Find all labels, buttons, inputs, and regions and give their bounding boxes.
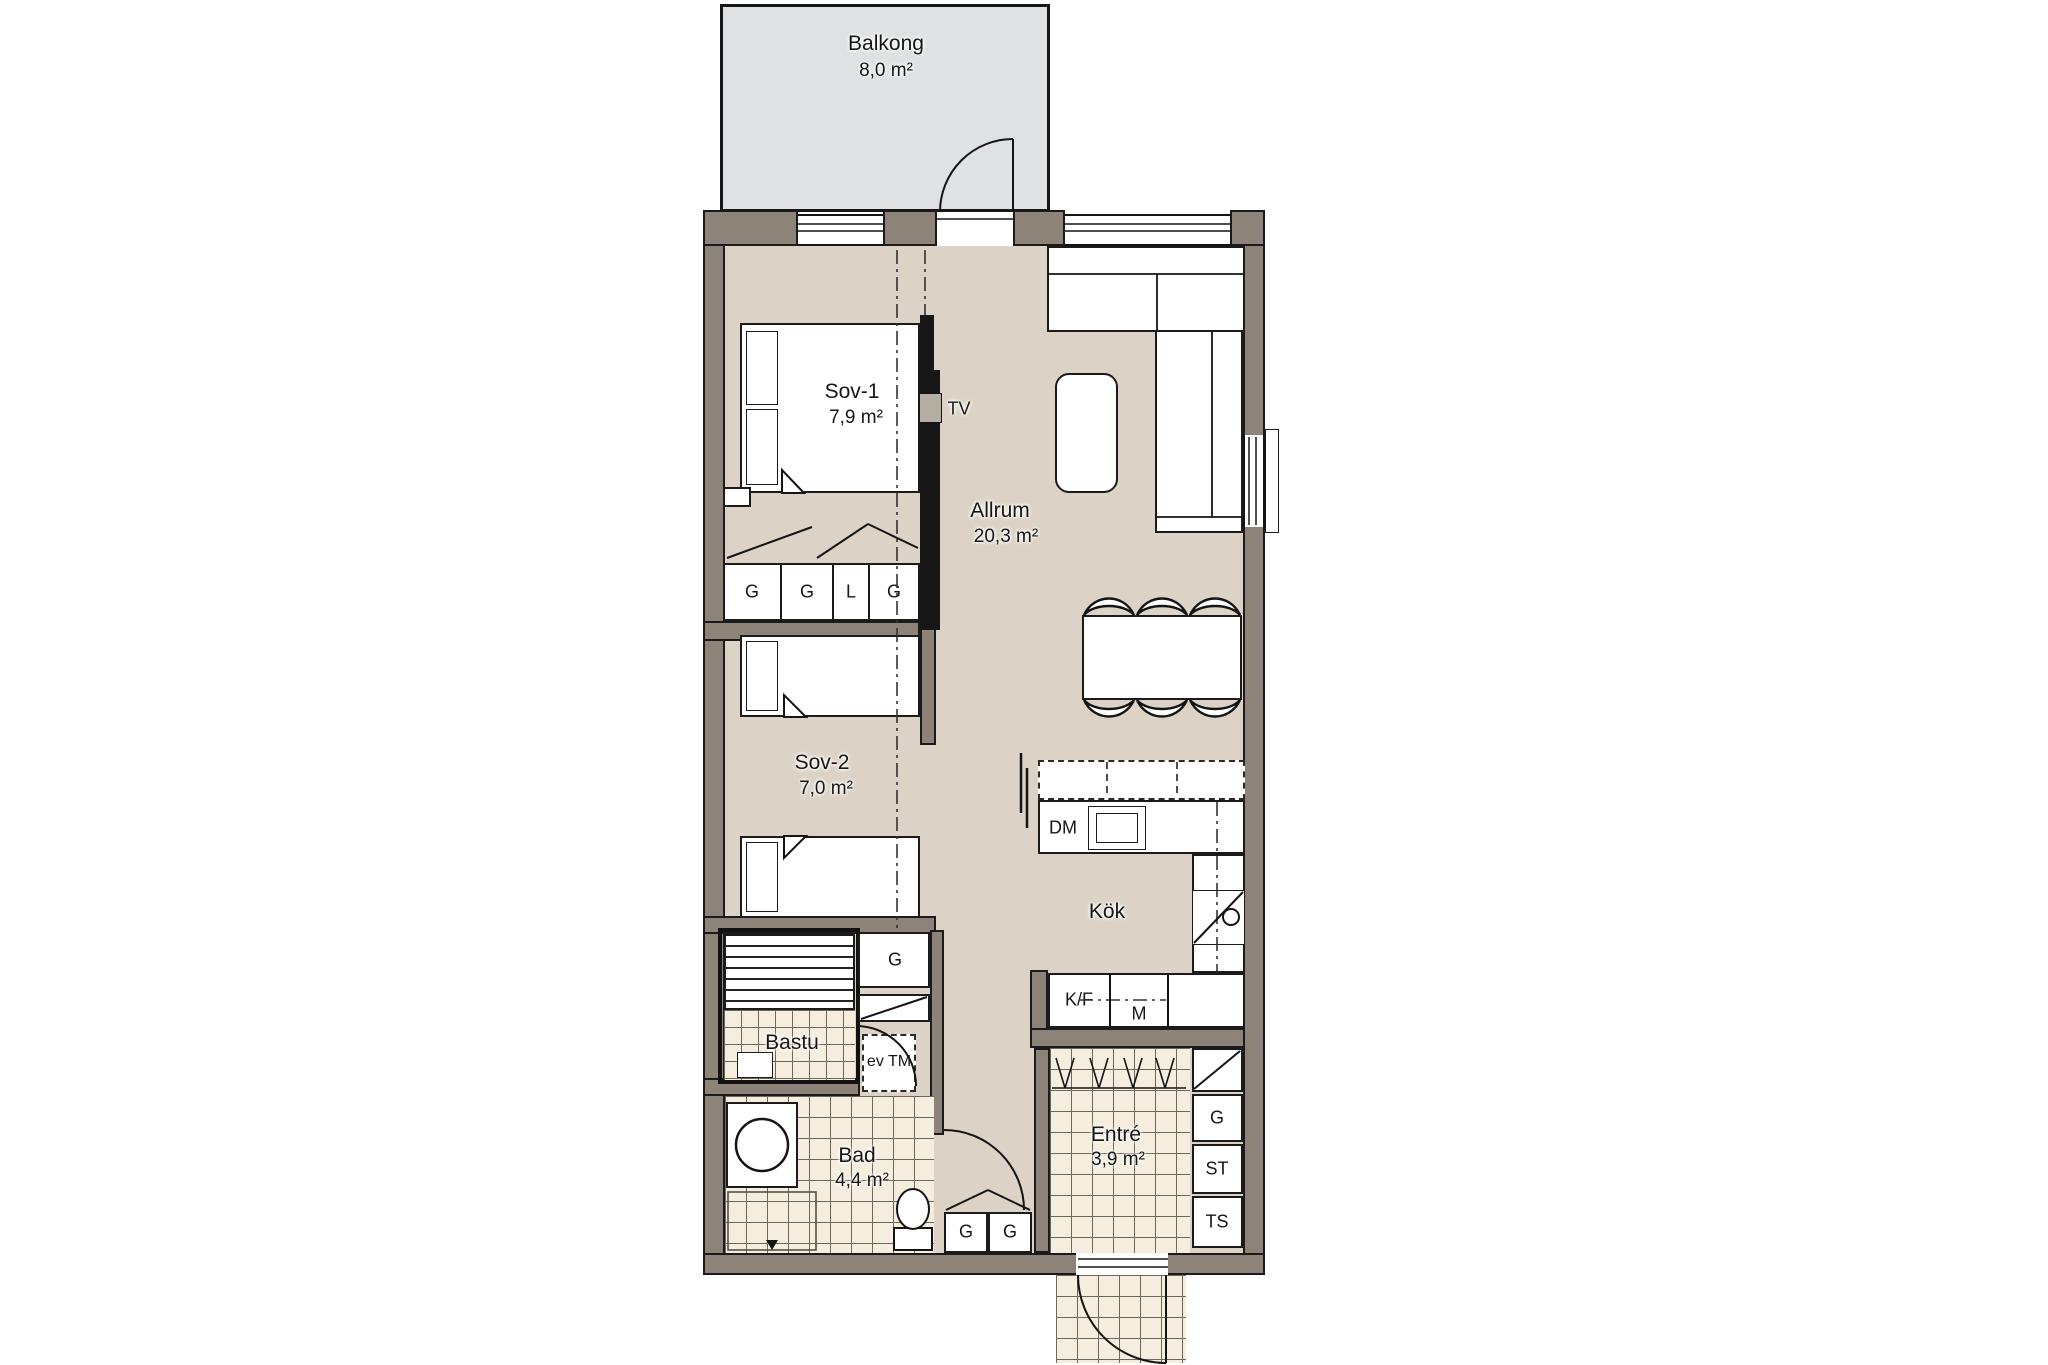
hall-shelf-box <box>858 994 930 1022</box>
bed-sov1-pillow-1 <box>746 331 778 405</box>
bastu-heater <box>737 1052 773 1078</box>
entre-shelf-box <box>1192 1048 1243 1092</box>
dining-table <box>1082 615 1242 700</box>
bottom-closet-g2-label: G <box>1003 1222 1017 1243</box>
entre-area-label: 3,9 m² <box>1091 1149 1145 1171</box>
bed-sov2-2-pillow <box>746 842 778 912</box>
fridge-freezer-label: K/F <box>1065 990 1093 1011</box>
wardrobe-l-label: L <box>846 582 856 603</box>
wall-right <box>1243 210 1265 1275</box>
sov1-area-label: 7,9 m² <box>829 407 883 429</box>
sofa-chaise <box>1155 330 1243 533</box>
sofa-body <box>1047 246 1245 332</box>
allrum-label: Allrum <box>970 499 1030 523</box>
bad-area-label: 4,4 m² <box>835 1170 889 1192</box>
bed-sov2-1-pillow <box>746 641 778 711</box>
bastu-label: Bastu <box>765 1031 819 1055</box>
entrance-exterior-pad <box>1056 1275 1186 1363</box>
window-right <box>1243 435 1265 527</box>
kitchen-upper-cabinets <box>1038 760 1245 800</box>
washbasin-cabinet <box>726 1102 798 1188</box>
window-right-sill <box>1265 429 1279 533</box>
wall-bottom <box>703 1253 1265 1275</box>
entre-label: Entré <box>1091 1123 1141 1147</box>
bad-label: Bad <box>838 1144 875 1168</box>
kitchen-oven <box>1192 890 1245 945</box>
wall-entre-left <box>1034 1048 1050 1253</box>
allrum-area-label: 20,3 m² <box>974 526 1038 548</box>
window-sov1 <box>798 214 883 246</box>
sov1-label: Sov-1 <box>825 380 880 404</box>
wardrobe-g2-label: G <box>800 582 814 603</box>
bottom-closet-g1-label: G <box>959 1222 973 1243</box>
wall-sov2-right <box>920 627 936 745</box>
floor-plan: Balkong 8,0 m² TV Sov-1 7,9 m² G G L G <box>0 0 2048 1365</box>
balcony-door-opening <box>937 214 1013 246</box>
tv-label: TV <box>947 399 970 420</box>
wall-top-c <box>1013 210 1065 246</box>
sov2-area-label: 7,0 m² <box>799 778 853 800</box>
wardrobe-g1-label: G <box>745 582 759 603</box>
bed-sov1-pillow-2 <box>746 409 778 485</box>
wall-kitchen-stub <box>1030 970 1048 1030</box>
wall-stub-sov1 <box>723 487 751 507</box>
wall-top-a <box>703 210 798 246</box>
balcony-label: Balkong <box>848 32 924 56</box>
entre-closet-ts-label: TS <box>1205 1212 1228 1233</box>
window-allrum <box>1065 214 1230 246</box>
bastu-benches <box>724 934 855 1010</box>
wall-left <box>703 210 725 1275</box>
dishwasher-label: DM <box>1049 818 1077 839</box>
coffee-table <box>1055 373 1118 493</box>
hall-closet-g-label: G <box>888 950 902 971</box>
entre-closet-st-label: ST <box>1205 1159 1228 1180</box>
kitchen-sink-basin <box>1096 813 1138 843</box>
balcony-area-label: 8,0 m² <box>859 60 913 82</box>
kok-label: Kök <box>1089 900 1125 924</box>
wall-top-b <box>883 210 937 246</box>
wall-under-kitchen <box>1030 1028 1245 1048</box>
wall-top-d <box>1230 210 1265 246</box>
washer-optional-label: ev TM <box>867 1053 911 1071</box>
entre-closet-g-label: G <box>1210 1108 1224 1129</box>
micro-label: M <box>1132 1004 1147 1025</box>
entrance-opening <box>1076 1253 1168 1275</box>
sov2-label: Sov-2 <box>795 751 850 775</box>
wardrobe-g3-label: G <box>887 582 901 603</box>
